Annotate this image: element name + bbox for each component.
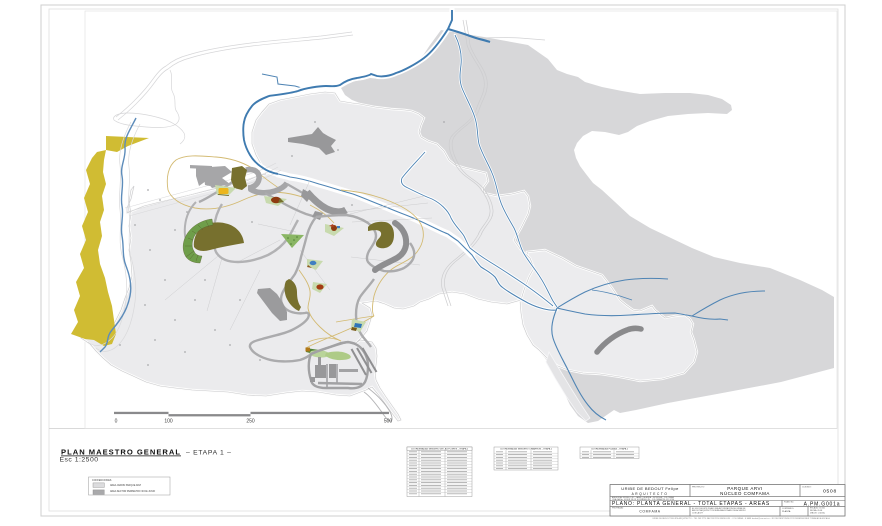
svg-text:PLANTA: PLANTA bbox=[782, 510, 791, 513]
svg-text:AREA SECTOR PERIMETRO 30 DE JU: AREA SECTOR PERIMETRO 30 DE JUNIO bbox=[110, 490, 155, 493]
svg-text:CODIGO:: CODIGO: bbox=[802, 486, 812, 488]
svg-text:250: 250 bbox=[246, 419, 255, 425]
svg-text:AREA JARDIN PARQUE ARVI: AREA JARDIN PARQUE ARVI bbox=[110, 484, 141, 487]
svg-text:ARQUITECTO: ARQUITECTO bbox=[632, 492, 669, 496]
svg-text:100: 100 bbox=[164, 419, 173, 425]
svg-text:0: 0 bbox=[115, 419, 118, 425]
svg-text:COMFAMA: COMFAMA bbox=[639, 510, 660, 514]
svg-text:URIBE DE BEDOUT FELIPE ARQUITE: URIBE DE BEDOUT FELIPE ARQUITECTO – TEL … bbox=[652, 517, 830, 520]
svg-text:DIBUJO: U.d.B.A.: DIBUJO: U.d.B.A. bbox=[810, 511, 825, 514]
svg-text:500: 500 bbox=[384, 419, 393, 425]
svg-text:– ETAPA 1 –: – ETAPA 1 – bbox=[186, 450, 232, 457]
svg-text:CONTENIDO:: CONTENIDO: bbox=[782, 508, 794, 510]
svg-text:URIBE DE BEDOUT Felipe: URIBE DE BEDOUT Felipe bbox=[621, 486, 679, 491]
svg-text:COORDENADAS SENDERO CIMARRON –: COORDENADAS SENDERO CIMARRON – ETAPA 1 bbox=[500, 448, 553, 451]
svg-text:PROPIEDAD:: PROPIEDAD: bbox=[612, 507, 624, 510]
svg-text:PROYECTO:: PROYECTO: bbox=[692, 486, 705, 488]
svg-text:CON LA LEY: CON LA LEY bbox=[692, 511, 704, 514]
svg-text:COORDENADAS PLAZAS – ETAPA 1: COORDENADAS PLAZAS – ETAPA 1 bbox=[591, 448, 629, 451]
svg-text:NÚCLEO COMFAMA: NÚCLEO COMFAMA bbox=[720, 490, 770, 496]
svg-text:PLANO No:: PLANO No: bbox=[784, 500, 794, 503]
svg-text:PLAN MAESTRO GENERAL: PLAN MAESTRO GENERAL bbox=[61, 448, 181, 457]
svg-text:CONVENCIONES: CONVENCIONES bbox=[92, 479, 112, 482]
svg-text:PLANO: PLANTA GENERAL - TOTAL: PLANO: PLANTA GENERAL - TOTAL ETAPAS - A… bbox=[612, 501, 770, 507]
svg-text:Esc 1:2500: Esc 1:2500 bbox=[60, 457, 99, 464]
svg-text:COORDENADAS SENDERO DE LAS FLO: COORDENADAS SENDERO DE LAS FLORES – ETAP… bbox=[411, 448, 469, 451]
svg-text:0508: 0508 bbox=[823, 489, 837, 495]
